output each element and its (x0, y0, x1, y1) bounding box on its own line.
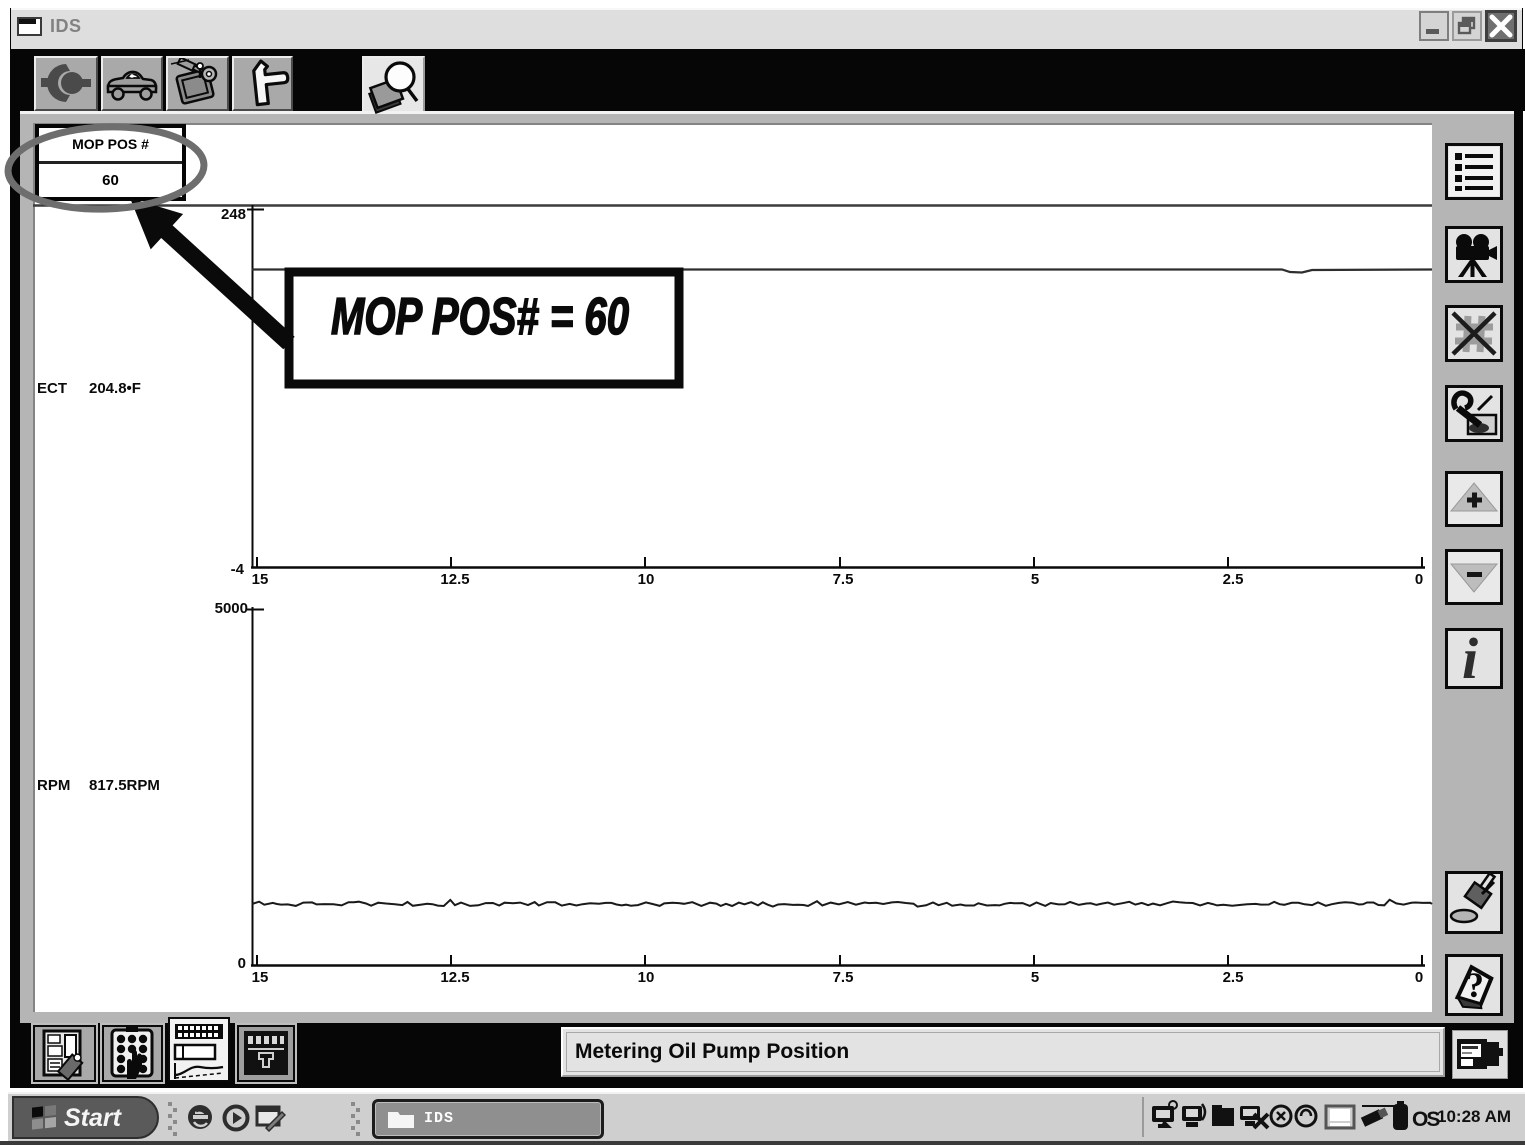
svg-text:i: i (1462, 631, 1478, 686)
svg-text:?: ? (1466, 965, 1484, 1005)
